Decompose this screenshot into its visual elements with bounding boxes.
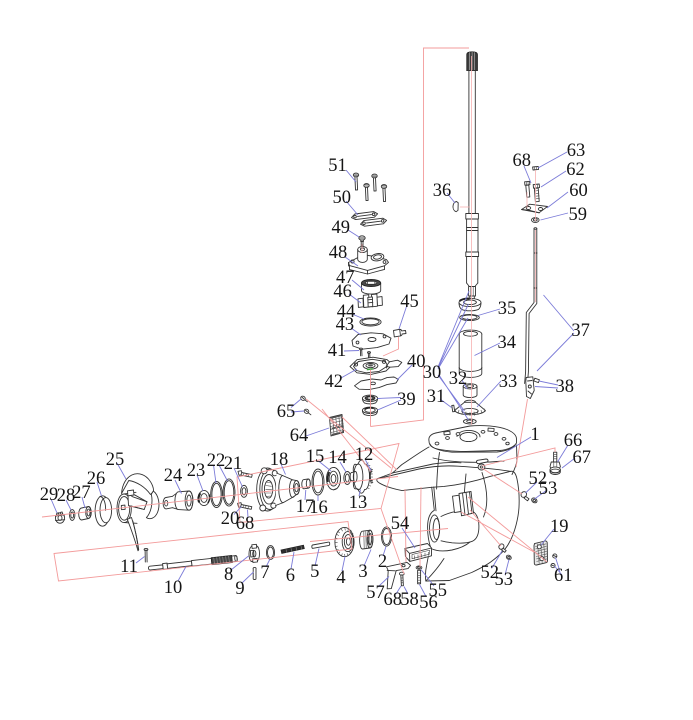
svg-text:53: 53 bbox=[539, 479, 558, 499]
svg-text:63: 63 bbox=[567, 141, 586, 161]
svg-text:51: 51 bbox=[328, 156, 347, 176]
svg-text:65: 65 bbox=[277, 402, 296, 422]
svg-text:37: 37 bbox=[571, 321, 590, 341]
svg-text:45: 45 bbox=[400, 292, 419, 312]
svg-text:15: 15 bbox=[306, 447, 325, 467]
svg-text:58: 58 bbox=[400, 590, 419, 610]
svg-text:35: 35 bbox=[498, 299, 517, 319]
svg-text:18: 18 bbox=[270, 450, 289, 470]
svg-text:2: 2 bbox=[378, 552, 387, 572]
svg-text:68: 68 bbox=[383, 590, 402, 610]
svg-text:54: 54 bbox=[391, 514, 410, 534]
svg-text:64: 64 bbox=[290, 426, 309, 446]
svg-text:12: 12 bbox=[355, 445, 374, 465]
svg-text:49: 49 bbox=[331, 218, 350, 238]
svg-text:25: 25 bbox=[106, 450, 125, 470]
svg-text:13: 13 bbox=[349, 493, 368, 513]
svg-text:67: 67 bbox=[573, 448, 592, 468]
svg-text:68: 68 bbox=[512, 151, 531, 171]
svg-text:11: 11 bbox=[120, 557, 138, 577]
svg-text:30: 30 bbox=[423, 363, 442, 383]
svg-text:53: 53 bbox=[494, 570, 513, 590]
svg-text:56: 56 bbox=[419, 593, 438, 613]
svg-text:39: 39 bbox=[397, 390, 416, 410]
svg-text:29: 29 bbox=[40, 485, 59, 505]
svg-text:7: 7 bbox=[260, 563, 269, 583]
svg-text:28: 28 bbox=[57, 486, 76, 506]
svg-text:50: 50 bbox=[332, 188, 351, 208]
svg-text:59: 59 bbox=[568, 205, 587, 225]
svg-text:43: 43 bbox=[336, 315, 355, 335]
svg-text:32: 32 bbox=[449, 369, 468, 389]
svg-text:6: 6 bbox=[286, 566, 295, 586]
svg-text:10: 10 bbox=[164, 578, 183, 598]
svg-text:16: 16 bbox=[309, 498, 328, 518]
svg-text:57: 57 bbox=[366, 583, 385, 603]
svg-text:19: 19 bbox=[550, 517, 569, 537]
svg-text:31: 31 bbox=[427, 387, 446, 407]
svg-text:14: 14 bbox=[328, 448, 347, 468]
svg-text:23: 23 bbox=[187, 461, 206, 481]
svg-text:38: 38 bbox=[555, 377, 574, 397]
svg-text:8: 8 bbox=[224, 565, 233, 585]
svg-text:33: 33 bbox=[499, 372, 518, 392]
svg-text:60: 60 bbox=[569, 181, 588, 201]
svg-text:5: 5 bbox=[310, 562, 319, 582]
svg-text:22: 22 bbox=[207, 451, 226, 471]
svg-text:41: 41 bbox=[328, 341, 347, 361]
svg-text:24: 24 bbox=[164, 466, 183, 486]
svg-text:48: 48 bbox=[329, 243, 348, 263]
svg-text:36: 36 bbox=[433, 181, 452, 201]
svg-text:68: 68 bbox=[236, 514, 255, 534]
svg-text:4: 4 bbox=[336, 568, 345, 588]
svg-text:21: 21 bbox=[224, 454, 243, 474]
svg-text:42: 42 bbox=[324, 372, 343, 392]
svg-text:61: 61 bbox=[554, 566, 573, 586]
svg-text:3: 3 bbox=[358, 562, 367, 582]
svg-text:62: 62 bbox=[566, 160, 585, 180]
svg-text:1: 1 bbox=[530, 425, 539, 445]
svg-text:46: 46 bbox=[333, 282, 352, 302]
svg-text:9: 9 bbox=[235, 579, 244, 599]
svg-text:34: 34 bbox=[498, 333, 517, 353]
